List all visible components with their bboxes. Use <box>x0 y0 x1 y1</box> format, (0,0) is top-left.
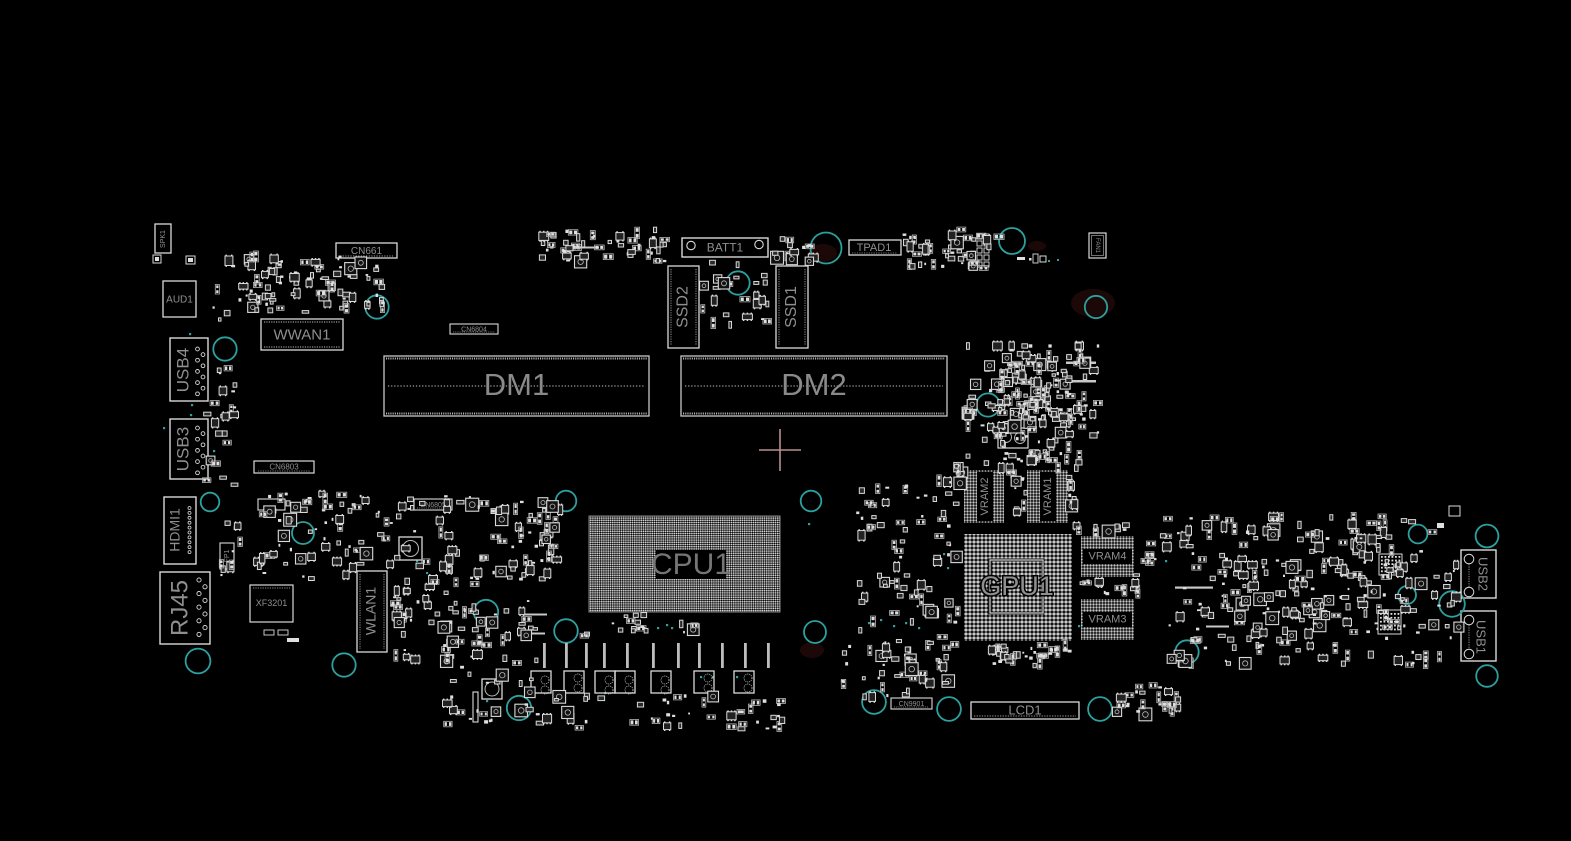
svg-text:TPAD1: TPAD1 <box>857 242 892 254</box>
svg-text:DM2: DM2 <box>781 367 846 402</box>
svg-text:VRAM2: VRAM2 <box>979 478 991 516</box>
svg-text:VRAM3: VRAM3 <box>1089 613 1127 625</box>
svg-text:VRAM4: VRAM4 <box>1089 550 1127 562</box>
svg-text:CN661: CN661 <box>351 246 383 257</box>
svg-text:LCD1: LCD1 <box>1008 702 1041 717</box>
svg-text:USB4: USB4 <box>173 348 192 392</box>
svg-text:VRAM1: VRAM1 <box>1042 478 1054 516</box>
svg-text:GPU1: GPU1 <box>980 571 1054 601</box>
svg-text:FAN1: FAN1 <box>1094 238 1100 254</box>
svg-text:USB3: USB3 <box>173 427 192 471</box>
svg-text:HDMI1: HDMI1 <box>167 508 183 552</box>
svg-text:AUD1: AUD1 <box>166 295 193 306</box>
svg-text:USB1: USB1 <box>1474 620 1489 654</box>
svg-text:WLAN1: WLAN1 <box>363 587 379 635</box>
svg-text:BATT1: BATT1 <box>707 241 744 255</box>
svg-text:CPU1: CPU1 <box>651 548 731 581</box>
svg-text:SSD2: SSD2 <box>675 286 692 328</box>
svg-text:CN6803: CN6803 <box>269 463 299 472</box>
svg-text:XF3201: XF3201 <box>256 598 288 608</box>
svg-text:DM1: DM1 <box>484 367 549 402</box>
svg-text:WWAN1: WWAN1 <box>274 326 331 343</box>
svg-text:SPK1: SPK1 <box>160 230 167 248</box>
svg-text:RJ45: RJ45 <box>166 580 193 636</box>
svg-text:SSD1: SSD1 <box>783 286 800 328</box>
svg-text:USB2: USB2 <box>1476 557 1491 591</box>
